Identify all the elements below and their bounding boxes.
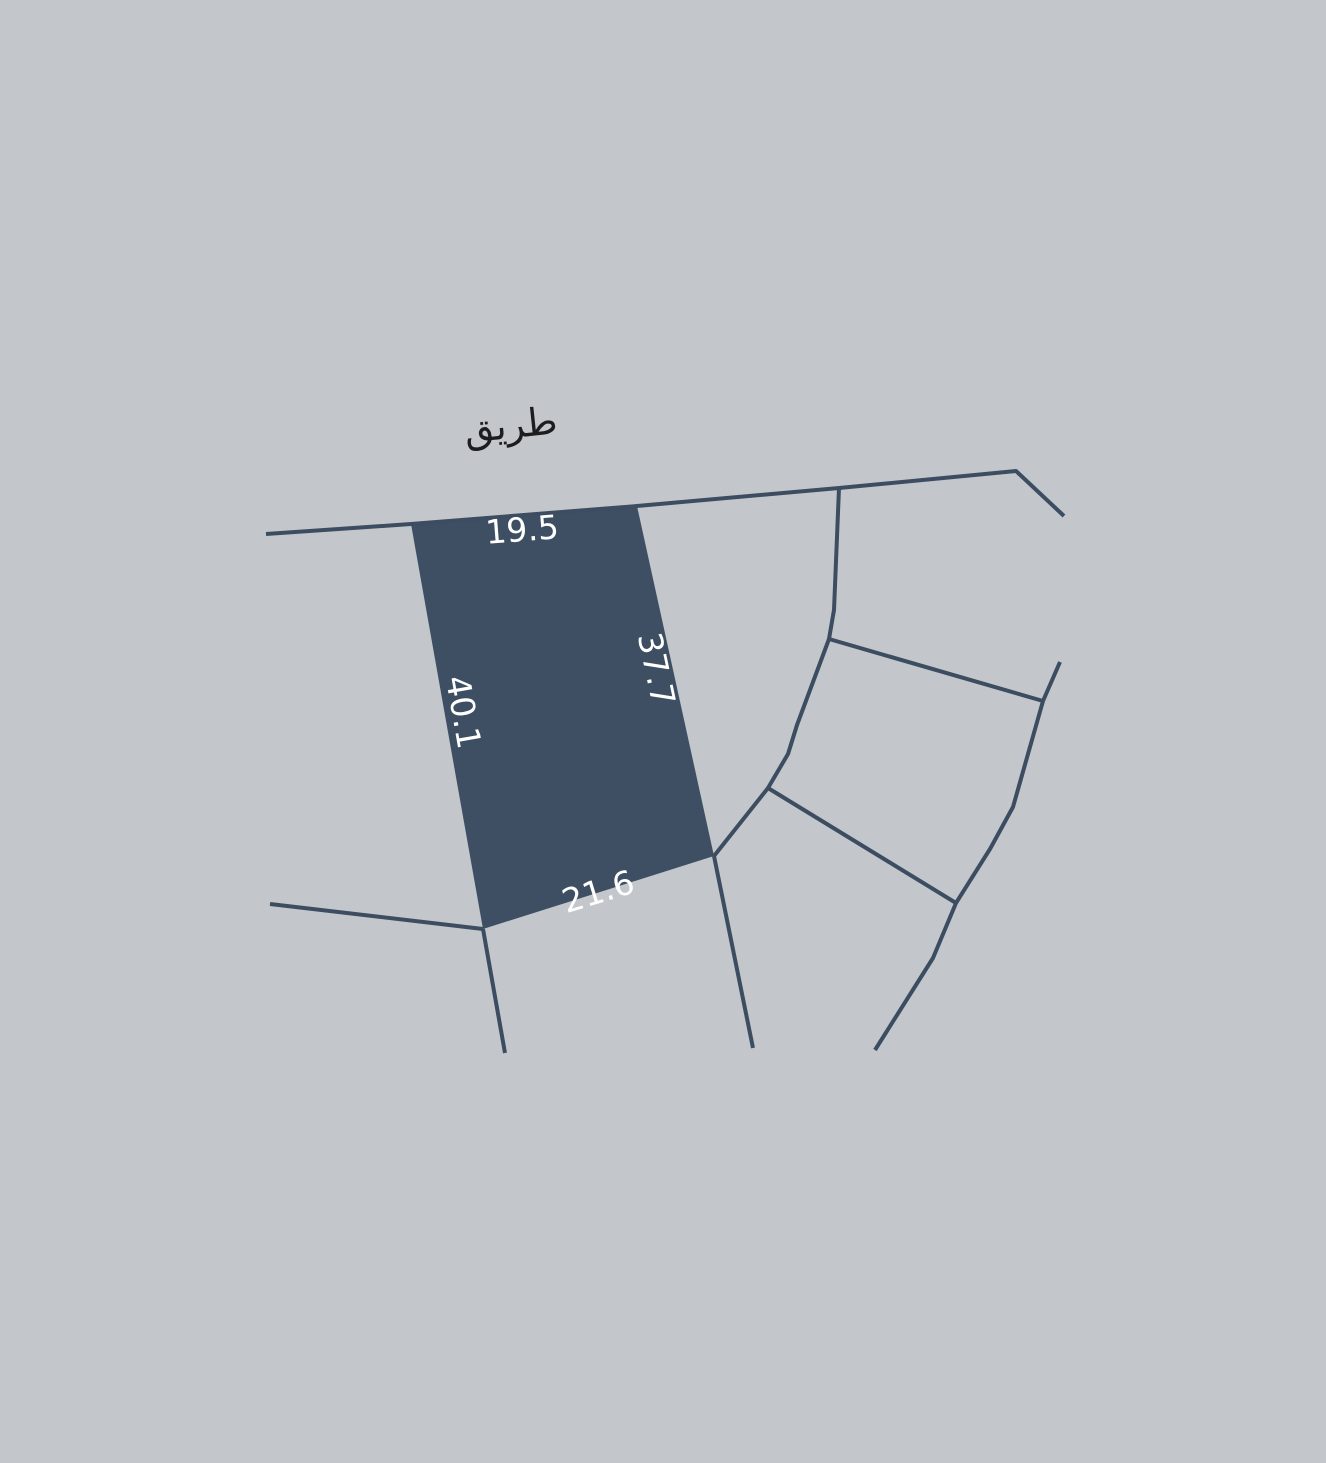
map-canvas: طريق 19.5 37.7 40.1 21.6 xyxy=(0,0,1326,1463)
parcel-map: طريق 19.5 37.7 40.1 21.6 xyxy=(0,0,1326,1463)
dimension-label-top: 19.5 xyxy=(484,507,560,552)
